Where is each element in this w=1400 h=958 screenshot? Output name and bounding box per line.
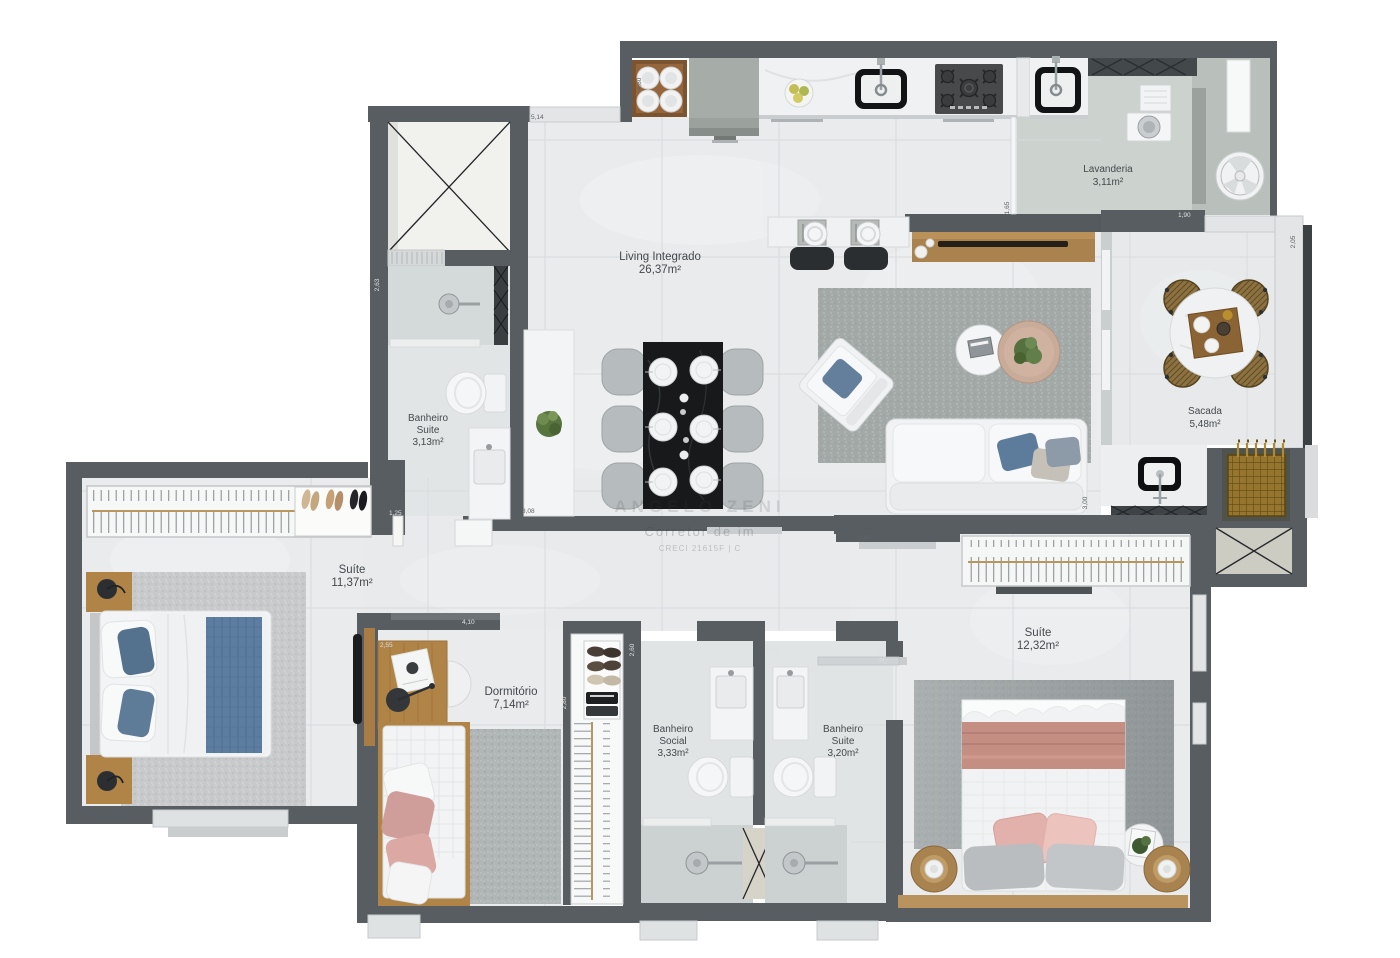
svg-text:11,37m²: 11,37m² bbox=[331, 577, 373, 589]
svg-text:Dormitório: Dormitório bbox=[484, 686, 537, 698]
svg-text:2,70: 2,70 bbox=[879, 648, 886, 661]
svg-text:1,25: 1,25 bbox=[766, 647, 779, 654]
svg-text:Social: Social bbox=[659, 736, 686, 747]
svg-text:4,10: 4,10 bbox=[462, 619, 475, 626]
svg-text:Banheiro: Banheiro bbox=[408, 413, 448, 424]
svg-text:Banheiro: Banheiro bbox=[653, 724, 693, 735]
svg-text:Corretor de im: Corretor de im bbox=[644, 524, 755, 539]
svg-text:1,90: 1,90 bbox=[1178, 212, 1191, 219]
svg-text:3,13m²: 3,13m² bbox=[412, 437, 444, 448]
svg-text:Lavanderia: Lavanderia bbox=[1083, 164, 1133, 175]
svg-text:8,08: 8,08 bbox=[522, 508, 535, 515]
svg-text:Suite: Suite bbox=[832, 736, 855, 747]
svg-text:3,20m²: 3,20m² bbox=[827, 748, 859, 759]
svg-text:1,25: 1,25 bbox=[389, 510, 402, 517]
svg-text:Banheiro: Banheiro bbox=[823, 724, 863, 735]
svg-text:2,80: 2,80 bbox=[561, 696, 568, 709]
svg-text:Suite: Suite bbox=[417, 425, 440, 436]
svg-text:7,14m²: 7,14m² bbox=[493, 699, 529, 711]
svg-text:3,45: 3,45 bbox=[858, 535, 871, 542]
svg-text:2,05: 2,05 bbox=[1290, 235, 1297, 248]
svg-text:1,65: 1,65 bbox=[1004, 201, 1011, 214]
svg-text:5,48m²: 5,48m² bbox=[1189, 419, 1221, 430]
svg-text:12,32m²: 12,32m² bbox=[1017, 640, 1059, 652]
svg-text:Suíte: Suíte bbox=[339, 564, 366, 576]
svg-text:Sacada: Sacada bbox=[1188, 406, 1222, 417]
svg-text:2,60: 2,60 bbox=[629, 643, 636, 656]
svg-text:2,55: 2,55 bbox=[380, 642, 393, 649]
svg-text:5,14: 5,14 bbox=[531, 114, 544, 121]
svg-text:4,80: 4,80 bbox=[636, 77, 643, 90]
svg-text:3,33m²: 3,33m² bbox=[657, 748, 689, 759]
svg-text:ANGELO ZENI: ANGELO ZENI bbox=[614, 497, 785, 516]
svg-text:2,63: 2,63 bbox=[374, 278, 381, 291]
svg-text:3,11m²: 3,11m² bbox=[1093, 177, 1124, 188]
svg-text:3,00: 3,00 bbox=[1082, 496, 1089, 509]
svg-text:Living Integrado: Living Integrado bbox=[619, 251, 701, 263]
svg-text:Suíte: Suíte bbox=[1025, 627, 1052, 639]
svg-text:CRECI 21615F | C: CRECI 21615F | C bbox=[659, 544, 742, 553]
svg-text:26,37m²: 26,37m² bbox=[639, 264, 681, 276]
